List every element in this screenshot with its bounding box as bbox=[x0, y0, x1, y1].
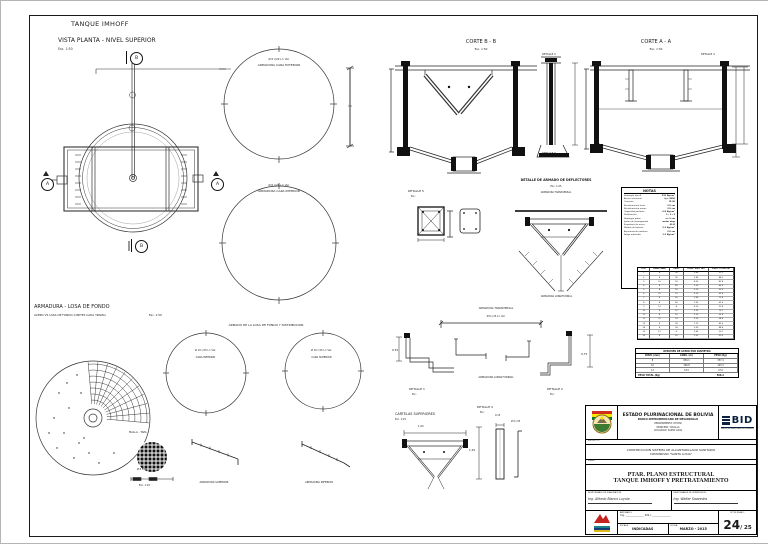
steel-total-value: 508.2 bbox=[703, 373, 738, 377]
armadura-superior-label: ARMADURA SUPERIOR bbox=[179, 481, 249, 484]
title-block: ESTADO PLURINACIONAL DE BOLIVIA BANCO IN… bbox=[585, 405, 757, 535]
sheet-name-line2: TANQUE IMHOFF Y PRETRATAMIENTO bbox=[613, 478, 728, 484]
dim-075: 0.75 bbox=[581, 353, 587, 356]
detalle-2-callout: DETALLE 2 bbox=[542, 53, 556, 56]
bid-logo-text: BID bbox=[732, 415, 753, 426]
armado-circles-drawing bbox=[161, 329, 366, 419]
detalle-5-label: DETALLE 5 bbox=[408, 190, 424, 194]
armado-title: ARMADO DE LA LOSA DE FONDO Y DISTRIBUCIO… bbox=[196, 324, 336, 328]
armado-c1-label: CARA INFERIOR bbox=[173, 356, 238, 359]
detalle-2b-esc: Esc: bbox=[550, 394, 554, 397]
summary-cell: 10 bbox=[636, 364, 670, 368]
malla-note: Ø 8 c/10 bbox=[137, 469, 147, 472]
rebar-cell: 8 bbox=[650, 335, 669, 339]
corte-b-title: CORTE B - B bbox=[421, 39, 541, 45]
detalle-1-esc: Esc: bbox=[412, 394, 416, 397]
armadura-inferior-drawing bbox=[296, 433, 366, 478]
summary-cell: 854.1 bbox=[670, 359, 704, 363]
armado-c1-note: Ø 10 c/15 L= Var. bbox=[173, 350, 238, 353]
armado-c2-label: CARA SUPERIOR bbox=[289, 356, 354, 359]
armadura-superior-drawing bbox=[186, 433, 256, 478]
dim-120: 1.20 bbox=[469, 449, 475, 452]
sheet-name: PTAR. PLANO ESTRUCTURAL TANQUE IMHOFF Y … bbox=[586, 465, 756, 491]
detalle-4b-label: DETALLE 4 bbox=[477, 406, 493, 410]
inner-circle-label: ARMADURA CARA INTERIOR bbox=[234, 190, 324, 194]
drawing-sheet: TANQUE IMHOFF VISTA PLANTA - NIVEL SUPER… bbox=[0, 0, 768, 544]
armado-c2-note: Ø 10 c/15 L= Var. bbox=[289, 350, 354, 353]
sig2-label: RESPONSABLE DE SUPERVISION: bbox=[674, 492, 755, 494]
losa-title: ARMADURA - LOSA DE FONDO bbox=[34, 304, 110, 310]
signature-elaborado: RESPONSABLE DE ELABORACION: Ing. Alfredo… bbox=[586, 491, 671, 510]
project-name: CONSTRUCCION SISTEMA DE ALCANTARILLADO S… bbox=[586, 445, 756, 460]
municipio-line: MUNICIPIO: YOCALLA bbox=[657, 426, 680, 429]
cartelas-title: CARTELAS SUPERIORES bbox=[395, 412, 435, 416]
bid-logo: BID Banco Interamericano de Desarrollo bbox=[718, 406, 756, 439]
approval-cell: APROBADO: Ing. ______________ R.N.I. ___… bbox=[618, 511, 718, 524]
corte-b-scale: Esc. 1:50 bbox=[421, 48, 541, 51]
steel-summary-body: 8854.1337.410199.8123.31253.547.5 bbox=[636, 359, 738, 373]
sheet-total: / 25 bbox=[740, 525, 752, 531]
sig1-name: Ing. Alfredo Blanco Loyola bbox=[588, 497, 669, 501]
view-title: VISTA PLANTA - NIVEL SUPERIOR bbox=[58, 37, 156, 44]
dim-015: 0.15 bbox=[495, 415, 500, 418]
cartelas-scale: Esc. 1:25 bbox=[395, 419, 406, 422]
localidad-line: LOCALIDAD: SANTA LUCIA bbox=[654, 429, 682, 432]
transversal-label: ARMADURA TRANSVERSAL bbox=[451, 307, 541, 310]
title-block-header: ESTADO PLURINACIONAL DE BOLIVIA BANCO IN… bbox=[586, 406, 756, 440]
summary-cell: 123.3 bbox=[704, 364, 738, 368]
bid-bars-icon bbox=[722, 416, 730, 425]
fecha-cell: FECHA: MARZO - 2015 bbox=[668, 524, 719, 534]
malla-label: MALLA - TAPA bbox=[129, 431, 147, 434]
corte-a-title: CORTE A - A bbox=[596, 39, 716, 45]
title-block-bottom: APROBADO: Ing. ______________ R.N.I. ___… bbox=[586, 511, 756, 534]
outer-circle-note: Ø 8 c/20 L= Var. bbox=[234, 58, 324, 61]
summary-cell: 8 bbox=[636, 359, 670, 363]
aprob-line1: Ing. ______________ bbox=[620, 514, 644, 517]
section-marker-b-top: B bbox=[130, 52, 143, 65]
bid-logo-subtext: Banco Interamericano de Desarrollo bbox=[721, 427, 753, 431]
coat-of-arms-icon bbox=[589, 409, 615, 437]
approval-and-meta: APROBADO: Ing. ______________ R.N.I. ___… bbox=[618, 511, 718, 534]
losa-subtitle: ACERO VS LOSA DE FONDO (LIMITES CADA TRA… bbox=[34, 314, 106, 317]
section-cut-tick-top bbox=[126, 51, 127, 64]
aprob-line2: R.N.I. ______________ bbox=[645, 514, 671, 517]
plan-view-drawing bbox=[37, 49, 237, 264]
section-arrow-a-right bbox=[213, 171, 219, 176]
summary-cell: 337.4 bbox=[704, 359, 738, 363]
detalle-4b-esc: Esc: bbox=[480, 412, 484, 415]
section-arrow-a-left bbox=[43, 171, 49, 176]
malla-scale: Esc. 1:10 bbox=[139, 485, 150, 488]
corte-a-scale: Esc. 1:50 bbox=[596, 48, 716, 51]
sig1-label: RESPONSABLE DE ELABORACION: bbox=[588, 492, 669, 494]
consultant-logo-icon bbox=[593, 513, 611, 525]
secondary-logo-icon bbox=[594, 526, 610, 532]
rebar-cell: 16 bbox=[638, 335, 650, 339]
inner-circle-note: Ø 8 c/20 L= Var. bbox=[234, 184, 324, 187]
summary-cell: 47.5 bbox=[704, 368, 738, 372]
rebar-circles-drawing bbox=[219, 46, 369, 308]
project-line2: COMUNIDAD "SANTA LUCIA" bbox=[650, 452, 692, 456]
escala-value: INDICADAS bbox=[620, 527, 666, 531]
sheet-number-cell: Nº DE PLANO: 24/ 25 bbox=[718, 511, 756, 534]
wall-note: Ø 8 c/15 bbox=[511, 421, 520, 424]
deflector-bottom-label: ARMADURA LONGITUDINAL bbox=[514, 296, 599, 299]
armadura-inferior-label: ARMADURA INFERIOR bbox=[284, 481, 354, 484]
summary-cell: 12 bbox=[636, 368, 670, 372]
corte-b-drawing bbox=[389, 49, 589, 196]
longitudinal-label: ARMADURA LONGITUDINAL bbox=[451, 376, 541, 379]
rebar-cell: 59.0 bbox=[709, 335, 734, 339]
bolivia-coat-of-arms bbox=[586, 406, 618, 439]
notes-title: NOTAS bbox=[624, 189, 675, 194]
deflector-top-label: ARMADURA TRANSVERSAL bbox=[516, 192, 596, 195]
dim-100: 1.00 bbox=[418, 425, 424, 428]
escala-cell: ESCALA: INDICADAS bbox=[618, 524, 668, 534]
summary-header-cell: DIAM. (mm) bbox=[636, 354, 670, 358]
corte-a-drawing bbox=[584, 49, 756, 196]
rebar-cell: 2.95 bbox=[684, 335, 709, 339]
fecha-value: MARZO - 2015 bbox=[671, 527, 717, 531]
detalle-5-drawing bbox=[406, 193, 486, 245]
summary-cell: 53.5 bbox=[670, 368, 704, 372]
outer-circle-label: ARMADURA CARA EXTERIOR bbox=[234, 64, 324, 68]
consultant-logos bbox=[586, 511, 618, 534]
detalle-5-esc: Esc: bbox=[411, 196, 415, 199]
detalle-1-label: DETALLE 1 bbox=[409, 388, 425, 392]
sheet-number: 24 bbox=[723, 518, 740, 532]
malla-drawing bbox=[119, 435, 189, 497]
steel-summary-table: RESUMEN DE ACERO POR DIAMETRO DIAM. (mm)… bbox=[635, 348, 739, 378]
rebar-table: POS.DIAM. (mm)CANT.LONG. UNIT. (m)LONG. … bbox=[637, 267, 735, 340]
bank-title: BANCO INTERAMERICANO DE DESARROLLO bbox=[638, 418, 698, 421]
bar-note: Ø 8 c/15 L= Var. bbox=[456, 316, 536, 319]
notes-list: Hormigón tipo A210 Kg/cm²Acero estructur… bbox=[624, 195, 675, 237]
signatures-row: RESPONSABLE DE ELABORACION: Ing. Alfredo… bbox=[586, 491, 756, 511]
view-scale: Esc. 1:50 bbox=[58, 48, 73, 52]
section-marker-a-left: A bbox=[41, 178, 54, 191]
sig2-line bbox=[674, 503, 738, 504]
section-marker-b-bottom: B bbox=[135, 240, 148, 253]
section-cut-tick-bottom bbox=[131, 239, 132, 252]
summary-cell: 199.8 bbox=[670, 364, 704, 368]
detalle-2b-label: DETALLE 2 bbox=[547, 388, 563, 392]
deflector-title: DETALLE DE ARMADO DE DEFLECTORES bbox=[496, 179, 616, 183]
detalle-4-callout: DETALLE 4 bbox=[701, 53, 715, 56]
summary-header-cell: PESO (Kg) bbox=[704, 354, 738, 358]
sig1-line bbox=[588, 503, 652, 504]
deflector-scale: Esc. 1:25 bbox=[496, 186, 616, 189]
steel-summary-total: PESO TOTAL (Kg) 508.2 bbox=[636, 373, 738, 377]
summary-header-cell: LONG. (m) bbox=[670, 354, 704, 358]
losa-scale: Esc. 1:50 bbox=[149, 314, 162, 317]
detalle-3-callout: DETALLE 3 bbox=[542, 152, 556, 155]
deflector-drawing bbox=[513, 193, 613, 305]
sheet-title: TANQUE IMHOFF bbox=[71, 21, 129, 29]
sig2-name: Ing. Walter Saavedra bbox=[674, 497, 755, 501]
note-row: Fatiga admisible1.2 Kg/cm² bbox=[624, 234, 675, 237]
signature-supervision: RESPONSABLE DE SUPERVISION: Ing. Walter … bbox=[671, 491, 757, 510]
dim-055: 0.55 bbox=[392, 349, 398, 352]
cartelas-drawing bbox=[394, 419, 599, 519]
rebar-cell: 20 bbox=[670, 335, 684, 339]
department-line: DEPARTAMENTO: POTOSI bbox=[654, 422, 681, 425]
steel-total-label: PESO TOTAL (Kg) bbox=[636, 373, 703, 377]
section-marker-a-right: A bbox=[211, 178, 224, 191]
